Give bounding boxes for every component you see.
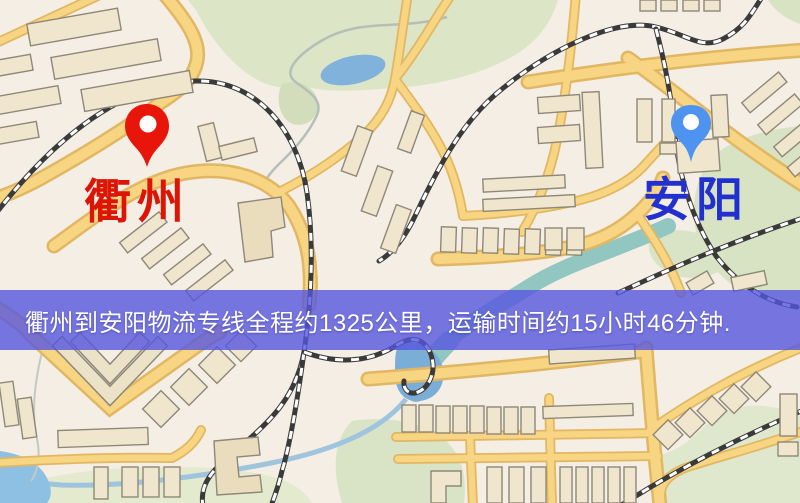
destination-pin-shape <box>671 105 711 162</box>
origin-city-label: 衢州 <box>84 178 190 225</box>
destination-pin-hole <box>683 114 699 130</box>
route-info-banner: 衢州到安阳物流专线全程约1325公里，运输时间约15小时46分钟. <box>0 290 800 350</box>
map-screenshot: 衢州 安阳 衢州到安阳物流专线全程约1325公里，运输时间约15小时46分钟. <box>0 0 800 503</box>
destination-city-label: 安阳 <box>643 176 749 223</box>
origin-pin[interactable] <box>120 101 174 171</box>
route-info-text: 衢州到安阳物流专线全程约1325公里，运输时间约15小时46分钟. <box>0 303 731 338</box>
map-canvas[interactable] <box>0 0 800 503</box>
destination-pin[interactable] <box>666 102 716 168</box>
origin-pin-hole <box>140 116 157 133</box>
origin-pin-shape <box>125 104 169 167</box>
